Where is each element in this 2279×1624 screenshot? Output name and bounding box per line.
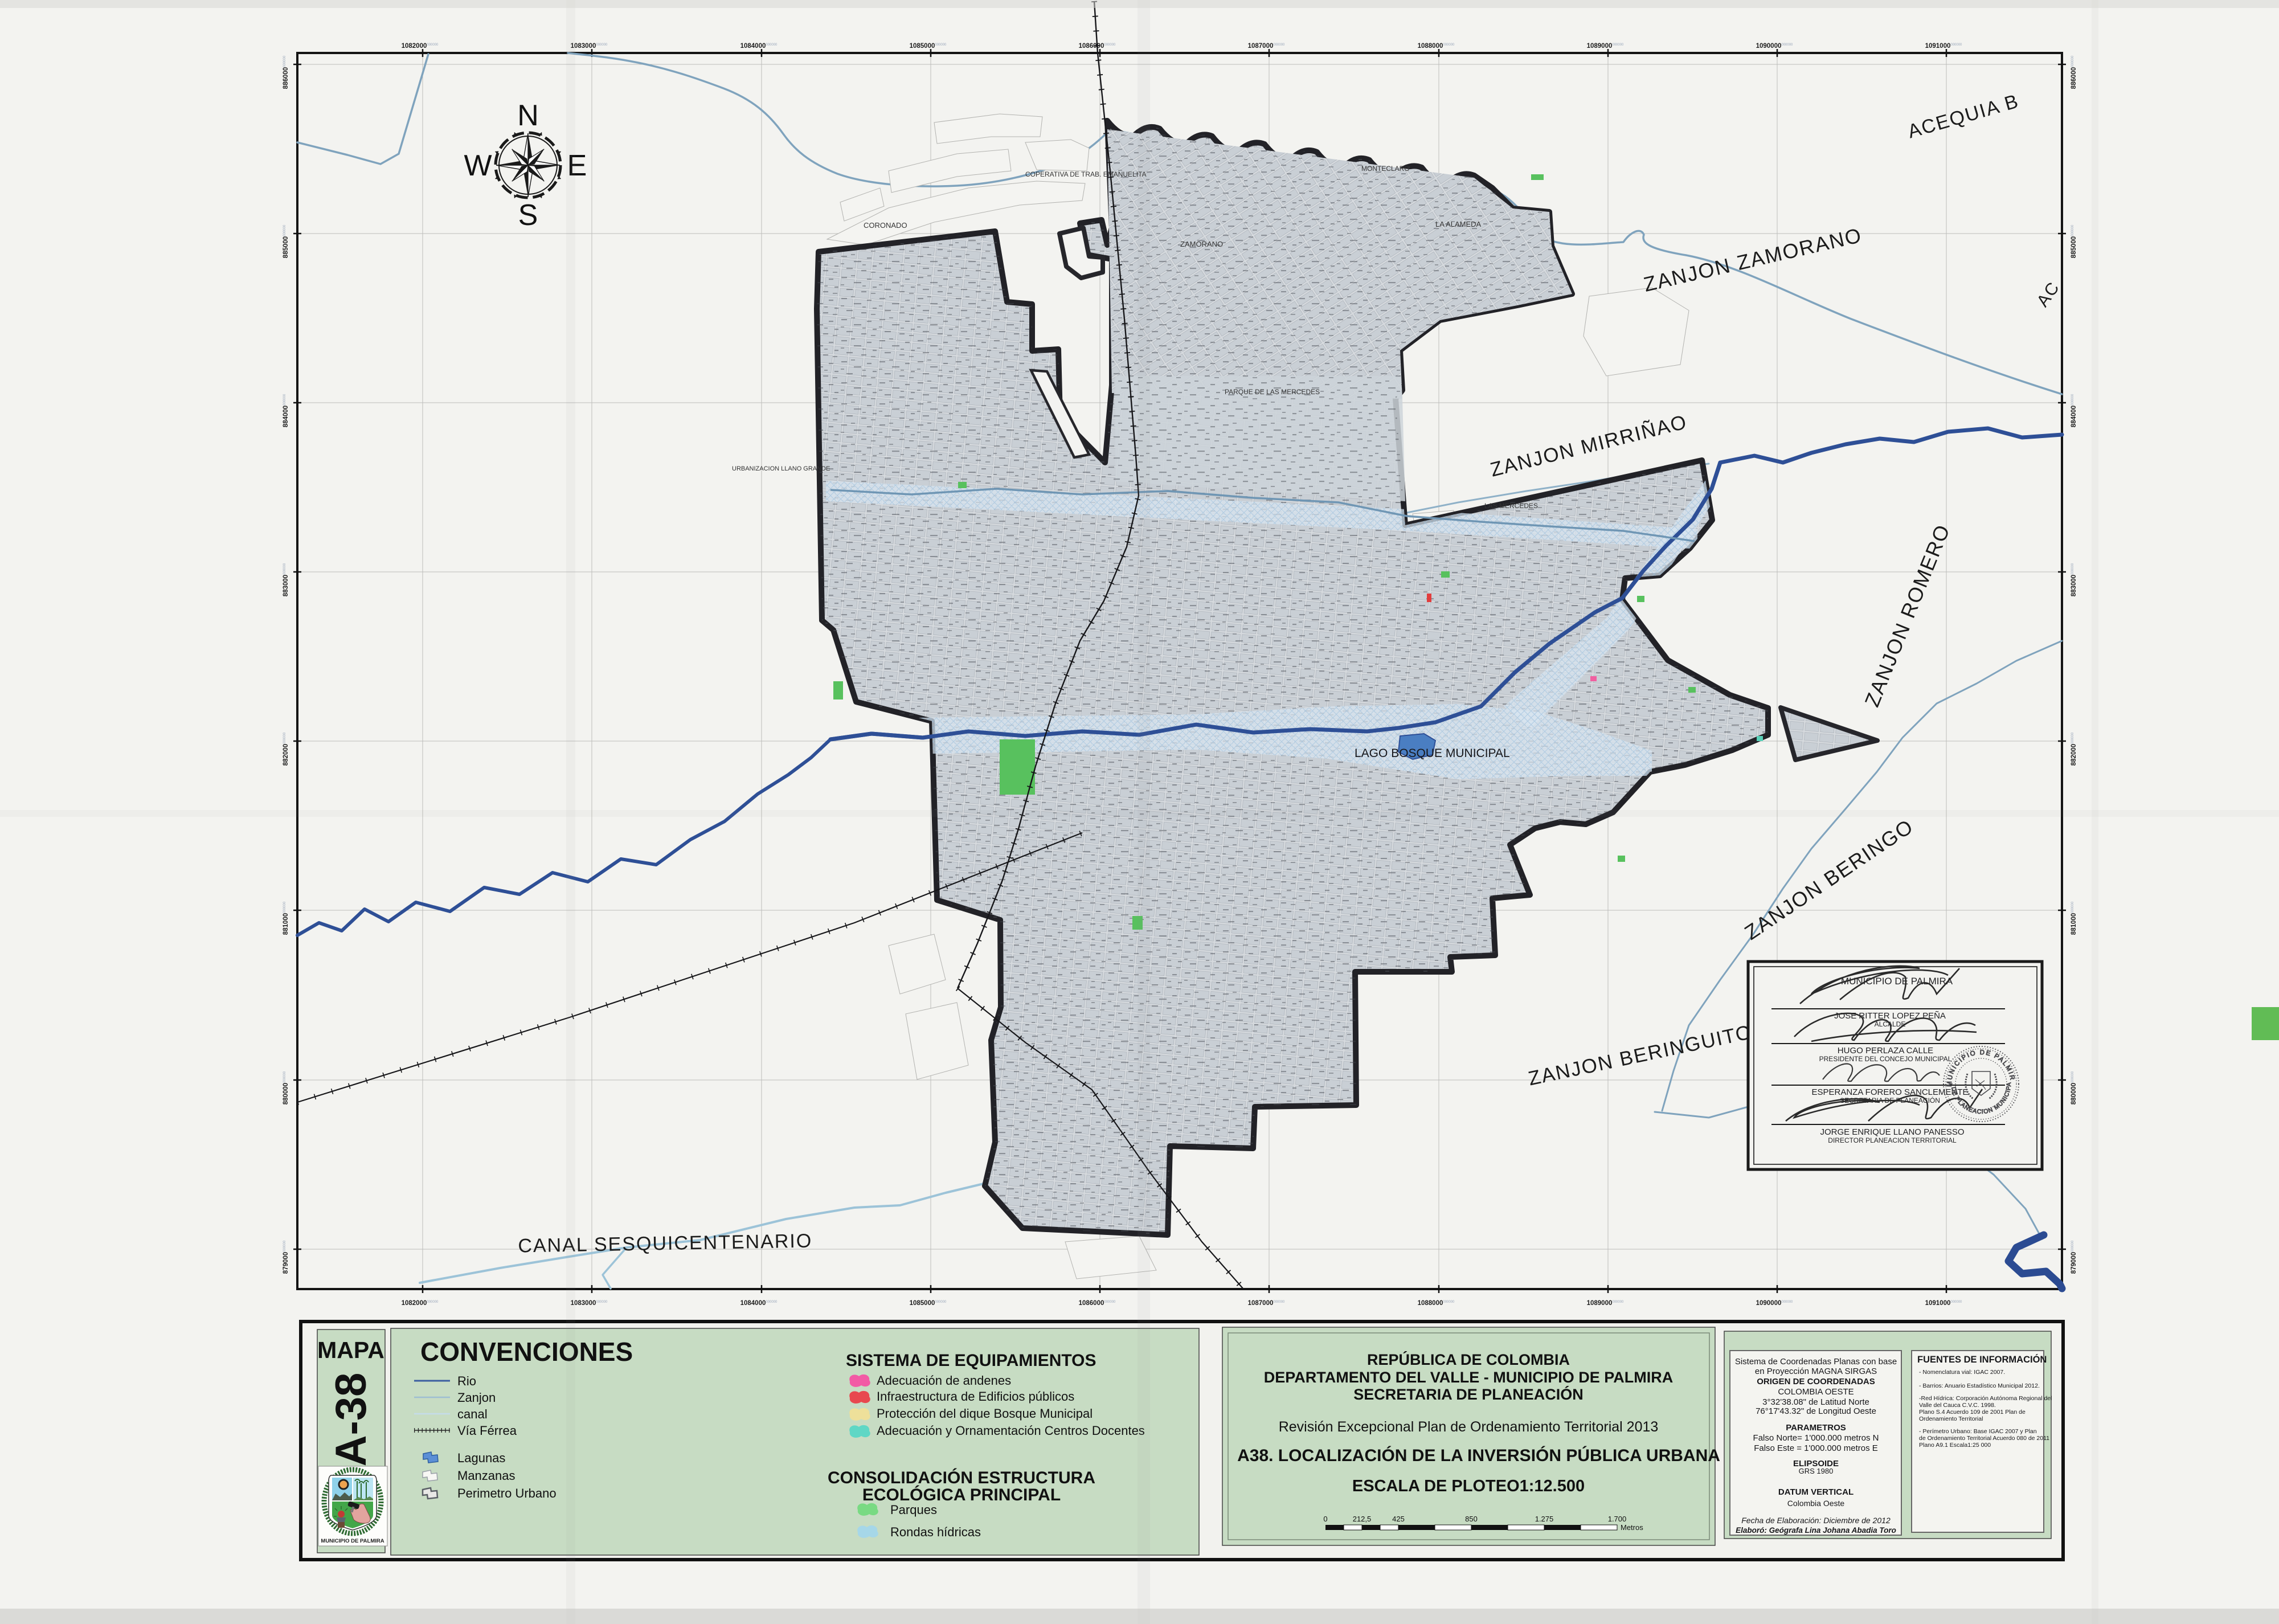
svg-text:PARAMETROS: PARAMETROS <box>1786 1423 1846 1433</box>
svg-text:425: 425 <box>1392 1515 1405 1523</box>
svg-text:- Barrios: Anuario Estadístico: - Barrios: Anuario Estadístico Municipal… <box>1919 1382 2040 1389</box>
svg-text:ZAMORANO: ZAMORANO <box>1180 240 1223 248</box>
svg-text:Infraestructura de Edificios p: Infraestructura de Edificios públicos <box>877 1389 1074 1404</box>
svg-text:ESCALA DE PLOTEO1:12.500: ESCALA DE PLOTEO1:12.500 <box>1352 1477 1585 1495</box>
svg-text:SECRETARIA DE PLANEACIÓN: SECRETARIA DE PLANEACIÓN <box>1353 1385 1584 1403</box>
svg-text:MONTECLARO: MONTECLARO <box>1361 165 1410 173</box>
svg-text:LAS MERCEDES: LAS MERCEDES <box>1484 502 1538 510</box>
svg-text:Colombia Oeste: Colombia Oeste <box>1787 1499 1845 1508</box>
svg-text:ECOLÓGICA PRINCIPAL: ECOLÓGICA PRINCIPAL <box>862 1485 1061 1504</box>
svg-text:1.275: 1.275 <box>1535 1515 1554 1523</box>
svg-text:Valle del Cauca C.V.C. 1998.: Valle del Cauca C.V.C. 1998. <box>1919 1402 1996 1409</box>
svg-text:Protección del dique Bosque Mu: Protección del dique Bosque Municipal <box>877 1406 1093 1421</box>
svg-text:COLOMBIA OESTE: COLOMBIA OESTE <box>1778 1387 1854 1397</box>
svg-text:76°17'43.32" de Longitud Oeste: 76°17'43.32" de Longitud Oeste <box>1756 1406 1876 1416</box>
svg-text:Adecuación de andenes: Adecuación de andenes <box>877 1373 1011 1388</box>
svg-text:- Perímetro Urbano: Base IGAC: - Perímetro Urbano: Base IGAC 2007 y Pla… <box>1919 1428 2037 1435</box>
svg-text:Manzanas: Manzanas <box>457 1468 515 1483</box>
svg-text:212,5: 212,5 <box>1353 1515 1372 1523</box>
svg-text:Rio: Rio <box>457 1374 476 1388</box>
svg-text:LA ALAMEDA: LA ALAMEDA <box>1435 220 1482 228</box>
svg-text:Metros: Metros <box>1621 1523 1643 1532</box>
svg-text:LAGO BOSQUE MUNICIPAL: LAGO BOSQUE MUNICIPAL <box>1355 747 1510 760</box>
svg-text:Lagunas: Lagunas <box>457 1451 505 1465</box>
svg-text:Rondas hídricas: Rondas hídricas <box>890 1525 981 1539</box>
svg-text:de Ordenamiento Territorial Ac: de Ordenamiento Territorial Acuerdo 080 … <box>1919 1435 2049 1442</box>
svg-text:Vía Férrea: Vía Férrea <box>457 1423 517 1438</box>
svg-text:S: S <box>518 199 538 232</box>
svg-text:URBANIZACION LLANO GRANDE: URBANIZACION LLANO GRANDE <box>732 465 830 472</box>
svg-text:PRESIDENTE DEL CONCEJO MUNICIP: PRESIDENTE DEL CONCEJO MUNICIPAL <box>1819 1055 1952 1063</box>
svg-text:MAPA: MAPA <box>317 1337 384 1363</box>
svg-text:W: W <box>464 149 492 182</box>
svg-text:1.700: 1.700 <box>1608 1515 1627 1523</box>
svg-text:Plano A9.1 Escala1:25 000: Plano A9.1 Escala1:25 000 <box>1919 1442 1991 1449</box>
svg-text:DIRECTOR PLANEACION TERRITORIA: DIRECTOR PLANEACION TERRITORIAL <box>1828 1136 1957 1144</box>
svg-text:en Proyección MAGNA SIRGAS: en Proyección MAGNA SIRGAS <box>1755 1367 1877 1376</box>
svg-text:canal: canal <box>457 1407 488 1421</box>
svg-text:Fecha de Elaboración: Diciembr: Fecha de Elaboración: Diciembre de 2012 <box>1741 1516 1891 1525</box>
svg-text:GRS 1980: GRS 1980 <box>1799 1467 1834 1475</box>
svg-text:N: N <box>517 99 539 132</box>
svg-text:-Red Hídrica: Corporación Autó: -Red Hídrica: Corporación Autónoma Regio… <box>1919 1395 2052 1402</box>
svg-text:Elaboró: Geógrafa Lina Johana: Elaboró: Geógrafa Lina Johana Abadia Tor… <box>1736 1526 1896 1535</box>
svg-text:Adecuación y Ornamentación Cen: Adecuación y Ornamentación Centros Docen… <box>877 1423 1145 1438</box>
svg-text:CONVENCIONES: CONVENCIONES <box>420 1337 633 1367</box>
svg-text:Parques: Parques <box>890 1503 937 1517</box>
svg-text:COPERATIVA DE TRAB. EMANUELITA: COPERATIVA DE TRAB. EMANUELITA <box>1025 170 1147 178</box>
svg-text:Perimetro Urbano: Perimetro Urbano <box>457 1486 557 1500</box>
svg-text:Falso Norte= 1'000.000 metros: Falso Norte= 1'000.000 metros N <box>1753 1433 1879 1443</box>
svg-text:MUNICIPIO DE PALMIRA: MUNICIPIO DE PALMIRA <box>321 1538 384 1544</box>
svg-text:A38. LOCALIZACIÓN DE LA INVERS: A38. LOCALIZACIÓN DE LA INVERSIÓN PÚBLIC… <box>1237 1446 1720 1465</box>
svg-text:DATUM VERTICAL: DATUM VERTICAL <box>1778 1487 1854 1497</box>
svg-text:- Nomenclatura vial: IGAC 200: - Nomenclatura vial: IGAC 2007. <box>1919 1369 2005 1376</box>
svg-text:A-38: A-38 <box>327 1373 375 1467</box>
svg-text:HUGO PERLAZA CALLE: HUGO PERLAZA CALLE <box>1838 1046 1933 1056</box>
svg-text:FUENTES DE INFORMACIÓN: FUENTES DE INFORMACIÓN <box>1917 1354 2047 1365</box>
svg-text:CONSOLIDACIÓN ESTRUCTURA: CONSOLIDACIÓN ESTRUCTURA <box>828 1468 1095 1487</box>
svg-text:Ordenamiento Territorial: Ordenamiento Territorial <box>1919 1416 1983 1422</box>
svg-text:Revisión Excepcional Plan de O: Revisión Excepcional Plan de Ordenamient… <box>1279 1419 1659 1435</box>
svg-text:Sistema de Coordenadas Planas: Sistema de Coordenadas Planas con base <box>1735 1357 1897 1367</box>
svg-text:3°32'38.08" de Latitud Norte: 3°32'38.08" de Latitud Norte <box>1762 1397 1869 1407</box>
svg-text:850: 850 <box>1465 1515 1478 1523</box>
svg-text:ORIGEN DE COORDENADAS: ORIGEN DE COORDENADAS <box>1757 1377 1875 1386</box>
svg-text:Plano S.4 Acuerdo 109 de 2001: Plano S.4 Acuerdo 109 de 2001 Plan de <box>1919 1409 2026 1416</box>
svg-text:Zanjon: Zanjon <box>457 1390 496 1405</box>
svg-text:SISTEMA DE EQUIPAMIENTOS: SISTEMA DE EQUIPAMIENTOS <box>846 1351 1096 1370</box>
svg-text:DEPARTAMENTO DEL VALLE - MUNIC: DEPARTAMENTO DEL VALLE - MUNICIPIO DE PA… <box>1264 1369 1674 1386</box>
svg-text:Falso Este = 1'000.000 metros: Falso Este = 1'000.000 metros E <box>1754 1443 1878 1453</box>
svg-text:PARQUE DE LAS MERCEDES: PARQUE DE LAS MERCEDES <box>1225 388 1320 396</box>
svg-text:CORONADO: CORONADO <box>864 221 907 230</box>
svg-text:0: 0 <box>1323 1515 1327 1523</box>
svg-text:JORGE ENRIQUE LLANO PANESSO: JORGE ENRIQUE LLANO PANESSO <box>1820 1127 1964 1137</box>
svg-text:REPÚBLICA DE COLOMBIA: REPÚBLICA DE COLOMBIA <box>1367 1351 1570 1368</box>
